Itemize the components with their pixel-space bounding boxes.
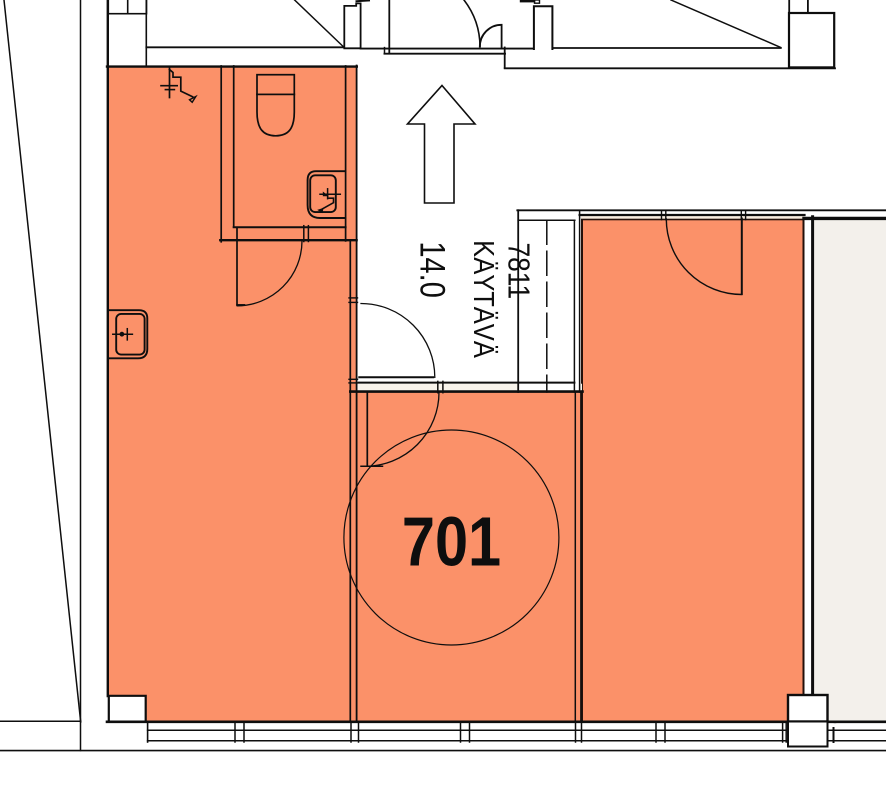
svg-text:701: 701 <box>402 502 501 581</box>
svg-text:7811: 7811 <box>501 242 535 299</box>
svg-text:14.0: 14.0 <box>413 241 452 298</box>
svg-text:KÄYTÄVÄ: KÄYTÄVÄ <box>468 240 501 358</box>
